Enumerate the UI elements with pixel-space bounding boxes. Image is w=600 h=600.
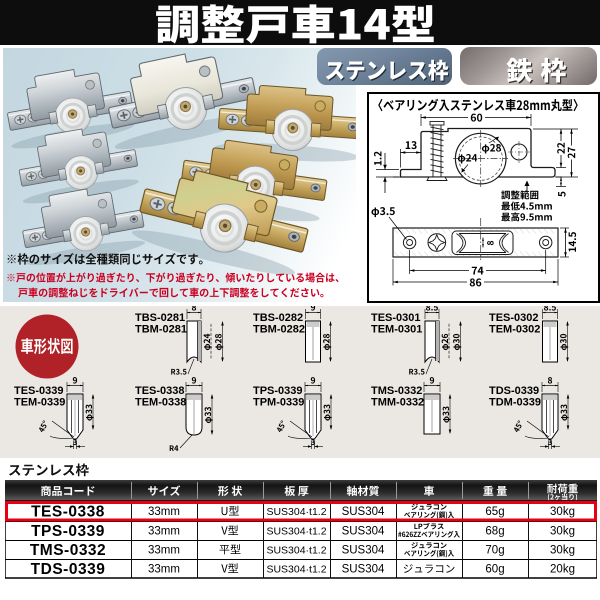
svg-text:20kg: 20kg — [550, 564, 575, 576]
svg-text:TEM-0339: TEM-0339 — [14, 397, 65, 409]
svg-text:TEM-0302: TEM-0302 — [489, 324, 540, 336]
svg-text:TPS-0339: TPS-0339 — [31, 523, 105, 540]
svg-text:SUS304·t1.2: SUS304·t1.2 — [266, 564, 326, 576]
svg-text:TMS-0332: TMS-0332 — [30, 542, 106, 559]
svg-text:TDM-0339: TDM-0339 — [489, 397, 541, 409]
svg-text:SUS304: SUS304 — [342, 506, 385, 518]
svg-text:TDS-0339: TDS-0339 — [31, 561, 106, 578]
svg-text:SUS304: SUS304 — [342, 564, 385, 576]
svg-text:TBM-0281: TBM-0281 — [135, 324, 187, 336]
svg-text:30kg: 30kg — [550, 545, 575, 557]
svg-text:33mm: 33mm — [148, 545, 180, 557]
svg-text:TES-0301: TES-0301 — [371, 312, 421, 324]
svg-text:TBM-0282: TBM-0282 — [253, 324, 305, 336]
svg-text:30kg: 30kg — [550, 506, 575, 518]
svg-text:TES-0302: TES-0302 — [489, 312, 539, 324]
svg-text:60g: 60g — [485, 564, 504, 576]
svg-text:TBS-0281: TBS-0281 — [135, 312, 185, 324]
svg-text:TES-0338: TES-0338 — [31, 504, 105, 521]
svg-text:SUS304: SUS304 — [342, 545, 385, 557]
svg-text:70g: 70g — [485, 545, 504, 557]
svg-text:TEM-0301: TEM-0301 — [371, 324, 422, 336]
svg-text:TES-0338: TES-0338 — [135, 385, 185, 397]
svg-text:SUS304·t1.2: SUS304·t1.2 — [266, 506, 326, 518]
svg-text:TEM-0338: TEM-0338 — [135, 397, 186, 409]
svg-text:30kg: 30kg — [550, 526, 575, 538]
svg-text:33mm: 33mm — [148, 564, 180, 576]
svg-text:SUS304·t1.2: SUS304·t1.2 — [266, 526, 326, 538]
svg-text:33mm: 33mm — [148, 526, 180, 538]
svg-text:TMM-0332: TMM-0332 — [371, 397, 424, 409]
svg-text:SUS304·t1.2: SUS304·t1.2 — [266, 545, 326, 557]
svg-text:TBS-0282: TBS-0282 — [253, 312, 303, 324]
svg-text:TDS-0339: TDS-0339 — [489, 385, 539, 397]
svg-text:TMS-0332: TMS-0332 — [371, 385, 422, 397]
svg-text:68g: 68g — [485, 526, 504, 538]
svg-text:TES-0339: TES-0339 — [14, 385, 64, 397]
svg-text:33mm: 33mm — [148, 506, 180, 518]
svg-text:65g: 65g — [485, 506, 504, 518]
svg-text:TPS-0339: TPS-0339 — [253, 385, 303, 397]
svg-text:TPM-0339: TPM-0339 — [253, 397, 304, 409]
svg-text:SUS304: SUS304 — [342, 526, 385, 538]
